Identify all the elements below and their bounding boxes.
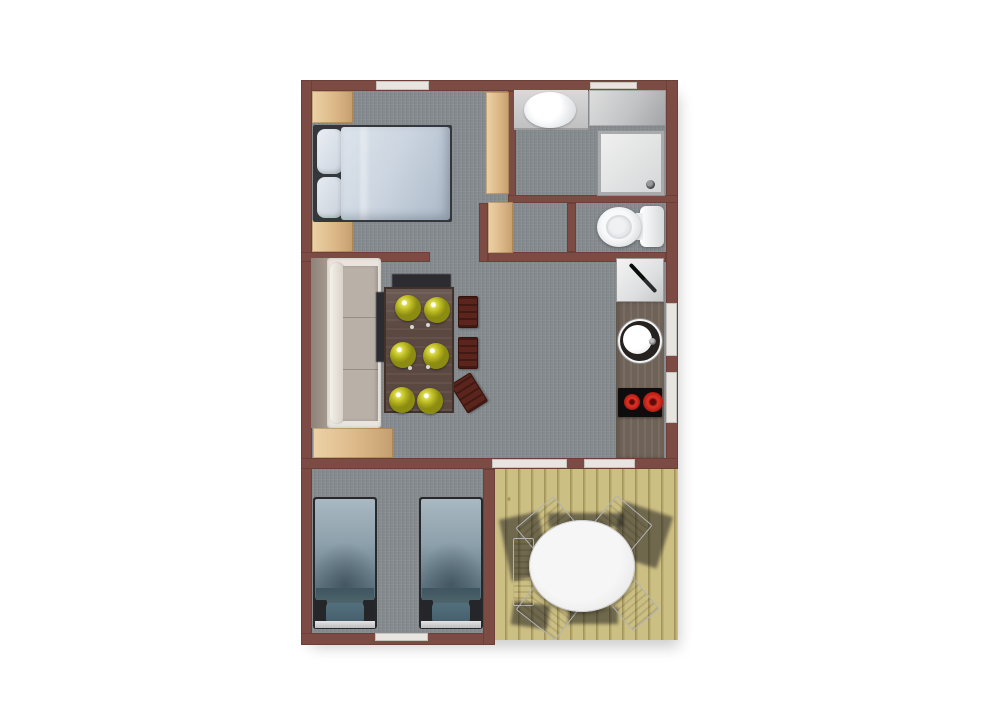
plate bbox=[390, 342, 416, 368]
closet-door-hall bbox=[488, 202, 513, 253]
vanity-sink bbox=[514, 90, 588, 130]
plate bbox=[424, 297, 450, 323]
vanity-basin bbox=[524, 92, 576, 128]
cutlery-dot bbox=[426, 323, 430, 327]
dining-chair bbox=[458, 337, 478, 369]
bed-base bbox=[421, 621, 481, 628]
bed-duvet bbox=[315, 499, 375, 599]
single-bed bbox=[313, 497, 377, 629]
window-bottom-bedroom bbox=[375, 633, 428, 641]
sink-tap bbox=[649, 338, 656, 345]
bed-pillow bbox=[432, 603, 470, 623]
window-top-bathroom bbox=[590, 82, 637, 89]
shower-tray bbox=[597, 130, 665, 196]
bed-base bbox=[315, 621, 375, 628]
plate bbox=[389, 387, 415, 413]
sofa bbox=[311, 258, 381, 428]
nightstand-top bbox=[312, 91, 353, 123]
dining-table-shadow bbox=[392, 274, 451, 288]
toilet bbox=[597, 204, 666, 250]
window-right-kitchen-1 bbox=[666, 303, 677, 356]
stove bbox=[618, 388, 662, 417]
wall-bedroom2-deck bbox=[483, 469, 495, 645]
plate bbox=[417, 388, 443, 414]
closet-door-bedroom bbox=[486, 92, 509, 194]
bed-duvet bbox=[421, 499, 481, 599]
dining-chair bbox=[458, 296, 478, 328]
plate bbox=[395, 295, 421, 321]
bed-duvet bbox=[341, 127, 450, 220]
bathroom-cabinet bbox=[589, 90, 666, 126]
door-opening-deck-1 bbox=[492, 459, 567, 468]
sink-basin bbox=[623, 325, 652, 354]
wall-bathroom-south bbox=[508, 195, 678, 203]
floor-plan bbox=[301, 80, 678, 645]
knife-icon bbox=[629, 263, 658, 294]
nightstand-bottom bbox=[312, 220, 353, 252]
cutlery-dot bbox=[408, 366, 412, 370]
sofa-backrest bbox=[330, 263, 343, 423]
cutting-board bbox=[616, 258, 664, 302]
door-opening-deck-2 bbox=[584, 459, 635, 468]
cutlery-dot bbox=[410, 325, 414, 329]
wall-hall-stub bbox=[479, 203, 488, 262]
toilet-tank bbox=[640, 206, 664, 247]
shower-drain bbox=[646, 180, 655, 189]
window-top-bedroom bbox=[376, 81, 429, 90]
bed-pillow bbox=[317, 129, 343, 174]
bed-pillow bbox=[317, 177, 343, 218]
window-right-kitchen-2 bbox=[666, 372, 677, 423]
bed-pillow bbox=[326, 603, 364, 623]
cutlery-dot bbox=[426, 365, 430, 369]
kitchen-sink bbox=[618, 319, 662, 363]
patio-table bbox=[529, 520, 635, 612]
single-bed bbox=[419, 497, 483, 629]
wall-wc-west bbox=[567, 203, 576, 252]
toilet-bowl-inner bbox=[606, 215, 632, 239]
stove-burner-right bbox=[643, 392, 663, 412]
sideboard-living bbox=[313, 428, 393, 458]
sofa-seats bbox=[343, 266, 378, 421]
floor-plan-page: Studio cabin floor plan – top-down 3D re… bbox=[0, 0, 1000, 724]
double-bed bbox=[313, 125, 452, 222]
stove-burner-left bbox=[624, 394, 640, 410]
